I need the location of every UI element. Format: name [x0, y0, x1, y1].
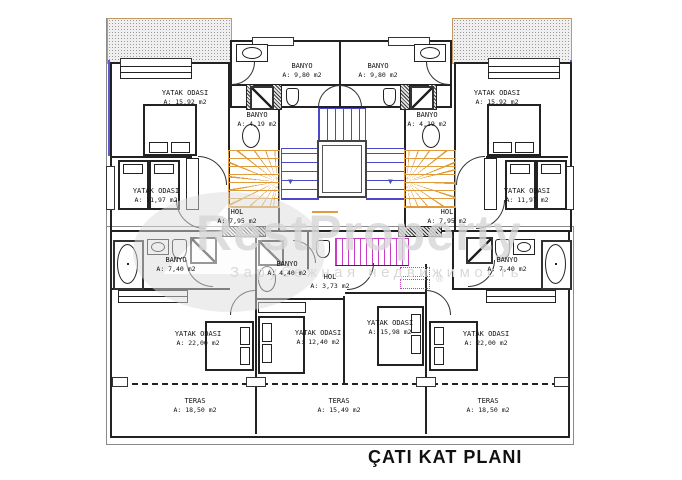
- room-label-teras-1549: TERAS A: 15,49 m2: [317, 397, 360, 414]
- masonry-pier: [400, 84, 410, 110]
- double-bed: [143, 104, 197, 156]
- room-name: BANYO: [496, 256, 517, 264]
- stair-direction-arrow: ▼: [288, 178, 293, 186]
- wall: [255, 230, 257, 434]
- room-label-yatak-2200-sag: YATAK ODASI A: 22,00 m2: [463, 330, 509, 347]
- room-label-yatak-ust-sol: YATAK ODASI A: 15,92 m2: [162, 89, 208, 106]
- bathtub: [541, 240, 572, 290]
- room-name: HOL: [441, 208, 454, 216]
- room-name: YATAK ODASI: [463, 330, 509, 338]
- pillow: [434, 347, 444, 365]
- room-name: TERAS: [328, 397, 349, 405]
- room-label-yatak-1197-sol: YATAK ODASI A: 11,97 m2: [133, 187, 179, 204]
- stair-treads-right: [366, 148, 405, 200]
- room-name: HOL: [324, 273, 337, 281]
- wall-stub: [416, 377, 436, 387]
- room-name: YATAK ODASI: [474, 89, 520, 97]
- room-label-teras-1850-sol: TERAS A: 18,50 m2: [173, 397, 216, 414]
- room-label-yatak-1240: YATAK ODASI A: 12,40 m2: [295, 329, 341, 346]
- sink-basin: [420, 47, 440, 59]
- room-area: A: 11,97 m2: [133, 196, 179, 204]
- winder-stair-left: [228, 150, 280, 208]
- toilet: [286, 88, 299, 106]
- pillow: [434, 327, 444, 345]
- wardrobe: [120, 66, 192, 79]
- room-area: A: 7,40 m2: [156, 265, 195, 273]
- sink: [236, 44, 268, 62]
- room-area: A: 22,00 m2: [175, 339, 221, 347]
- winder-stair-right: [404, 150, 456, 208]
- pillow: [154, 164, 174, 174]
- room-name: YATAK ODASI: [162, 89, 208, 97]
- room-label-banyo-740-sol: BANYO A: 7,40 m2: [156, 256, 195, 273]
- room-label-banyo-419-sag: BANYO A: 4,19 m2: [407, 111, 446, 128]
- level-mark: [312, 211, 338, 213]
- room-name: HOL: [231, 208, 244, 216]
- room-name: BANYO: [246, 111, 267, 119]
- room-name: YATAK ODASI: [504, 187, 550, 195]
- bathtub: [113, 240, 144, 290]
- pillow: [541, 164, 561, 174]
- wall: [343, 296, 345, 384]
- room-label-hol-795-sag: HOL A: 7,95 m2: [427, 208, 466, 225]
- room-area: A: 12,40 m2: [295, 338, 341, 346]
- pillow: [515, 142, 534, 153]
- room-name: BANYO: [367, 62, 388, 70]
- room-label-teras-1850-sag: TERAS A: 18,50 m2: [466, 397, 509, 414]
- room-area: A: 4,40 m2: [267, 269, 306, 277]
- pillow: [171, 142, 190, 153]
- double-bed: [487, 104, 541, 156]
- room-area: A: 4,19 m2: [407, 120, 446, 128]
- sink: [414, 44, 446, 62]
- room-label-banyo-740-sag: BANYO A: 7,40 m2: [487, 256, 526, 273]
- wall: [452, 230, 454, 290]
- room-area: A: 9,80 m2: [282, 71, 321, 79]
- room-area: A: 18,50 m2: [173, 406, 216, 414]
- bathtub-drain: [127, 263, 129, 265]
- wall-stub: [112, 377, 128, 387]
- room-label-yatak-1197-sag: YATAK ODASI A: 11,97 m2: [504, 187, 550, 204]
- stair-dotted-magenta: [400, 279, 430, 289]
- room-area: A: 15,98 m2: [367, 328, 413, 336]
- stair-dotted-magenta: [400, 267, 430, 277]
- room-label-hol-373: HOL A: 3,73 m2: [310, 273, 349, 290]
- double-bed: [377, 306, 424, 366]
- wall: [345, 292, 427, 294]
- sink: [513, 239, 535, 255]
- pillow: [149, 142, 168, 153]
- sink: [147, 239, 169, 255]
- pillow: [240, 327, 250, 345]
- room-area: A: 22,00 m2: [463, 339, 509, 347]
- room-name: YATAK ODASI: [367, 319, 413, 327]
- stair-core-inner: [322, 145, 362, 193]
- sink-basin: [242, 47, 262, 59]
- window: [106, 166, 115, 210]
- room-label-yatak-1598: YATAK ODASI A: 15,98 m2: [367, 319, 413, 336]
- pillow: [411, 335, 421, 354]
- stair-direction-arrow: ▼: [388, 178, 393, 186]
- room-name: BANYO: [165, 256, 186, 264]
- room-label-banyo-419-sol: BANYO A: 4,19 m2: [237, 111, 276, 128]
- toilet: [383, 88, 396, 106]
- sink-basin: [517, 242, 531, 252]
- room-area: A: 18,50 m2: [466, 406, 509, 414]
- room-area: A: 9,80 m2: [358, 71, 397, 79]
- stair-treads-magenta: [335, 238, 409, 266]
- room-name: TERAS: [184, 397, 205, 405]
- wardrobe: [258, 302, 306, 313]
- wardrobe: [488, 66, 560, 79]
- terrace-boundary-dashed: [112, 383, 568, 387]
- pillow: [510, 164, 530, 174]
- room-name: BANYO: [276, 260, 297, 268]
- room-area: A: 7,40 m2: [487, 265, 526, 273]
- room-label-yatak-ust-sag: YATAK ODASI A: 15,92 m2: [474, 89, 520, 106]
- wall: [255, 298, 345, 300]
- pillow: [123, 164, 143, 174]
- plan-title: ÇATI KAT PLANI: [368, 447, 522, 468]
- bathtub-drain: [555, 263, 557, 265]
- room-label-yatak-2200-sol: YATAK ODASI A: 22,00 m2: [175, 330, 221, 347]
- pillow: [262, 344, 272, 363]
- shower: [410, 86, 434, 110]
- pillow: [493, 142, 512, 153]
- room-area: A: 15,49 m2: [317, 406, 360, 414]
- toilet: [316, 240, 330, 258]
- pillow: [240, 347, 250, 365]
- wardrobe: [118, 290, 188, 303]
- wardrobe: [486, 290, 556, 303]
- room-area: A: 7,95 m2: [217, 217, 256, 225]
- room-area: A: 3,73 m2: [310, 282, 349, 290]
- stair-treads-left: [281, 148, 319, 200]
- room-label-banyo-ust-sol: BANYO A: 9,80 m2: [282, 62, 321, 79]
- room-name: YATAK ODASI: [175, 330, 221, 338]
- room-area: A: 7,95 m2: [427, 217, 466, 225]
- room-label-banyo-440: BANYO A: 4,40 m2: [267, 260, 306, 277]
- room-name: YATAK ODASI: [295, 329, 341, 337]
- masonry-pier: [222, 226, 266, 237]
- wall: [486, 156, 568, 158]
- floor-plan: ▼ ▼: [0, 0, 682, 480]
- shower: [250, 86, 274, 110]
- masonry-pier: [398, 226, 442, 237]
- pillow: [262, 323, 272, 342]
- room-name: BANYO: [416, 111, 437, 119]
- room-label-hol-795-sol: HOL A: 7,95 m2: [217, 208, 256, 225]
- wall: [110, 156, 192, 158]
- room-label-banyo-ust-sag: BANYO A: 9,80 m2: [358, 62, 397, 79]
- wall-stub: [246, 377, 266, 387]
- room-name: TERAS: [477, 397, 498, 405]
- room-name: YATAK ODASI: [133, 187, 179, 195]
- room-area: A: 4,19 m2: [237, 120, 276, 128]
- wall-stub: [554, 377, 569, 387]
- room-area: A: 15,92 m2: [162, 98, 208, 106]
- room-name: BANYO: [291, 62, 312, 70]
- stair-core: [317, 140, 367, 198]
- room-area: A: 11,97 m2: [504, 196, 550, 204]
- sink-basin: [151, 242, 165, 252]
- room-area: A: 15,92 m2: [474, 98, 520, 106]
